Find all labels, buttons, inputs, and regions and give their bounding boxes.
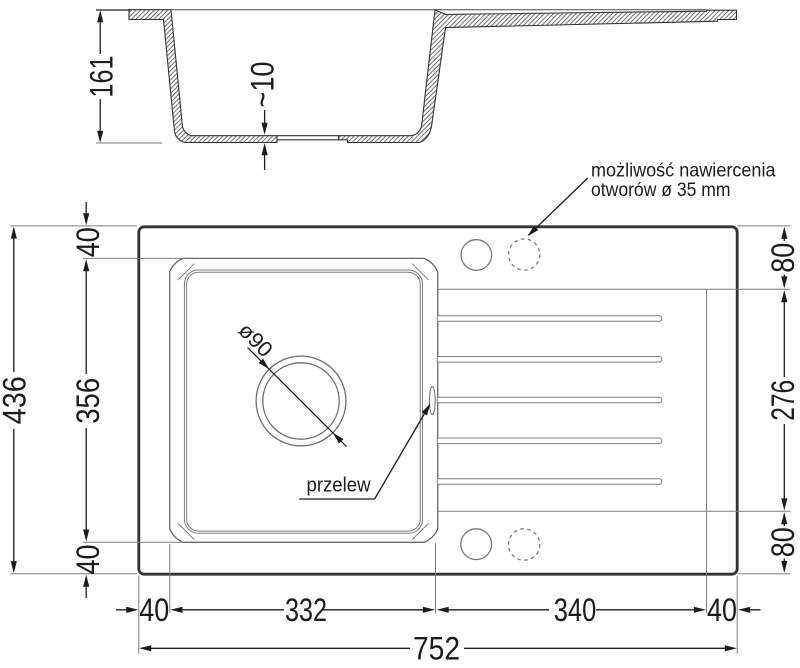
svg-text:40: 40 xyxy=(70,545,106,575)
svg-text:80: 80 xyxy=(765,527,800,557)
svg-text:otworów ø 35 mm: otworów ø 35 mm xyxy=(591,179,731,201)
svg-text:40: 40 xyxy=(70,227,106,257)
svg-text:752: 752 xyxy=(413,631,460,667)
svg-text:436: 436 xyxy=(0,376,32,424)
svg-text:80: 80 xyxy=(765,243,800,273)
svg-text:161: 161 xyxy=(83,56,119,98)
svg-text:możliwość nawiercenia: możliwość nawiercenia xyxy=(591,159,776,181)
svg-text:40: 40 xyxy=(707,592,737,628)
svg-text:~10: ~10 xyxy=(245,62,281,108)
svg-text:276: 276 xyxy=(765,380,800,421)
svg-text:40: 40 xyxy=(139,592,169,628)
svg-text:332: 332 xyxy=(285,592,327,628)
svg-text:340: 340 xyxy=(554,592,597,628)
svg-text:przelew: przelew xyxy=(307,474,371,497)
svg-text:356: 356 xyxy=(70,378,106,424)
